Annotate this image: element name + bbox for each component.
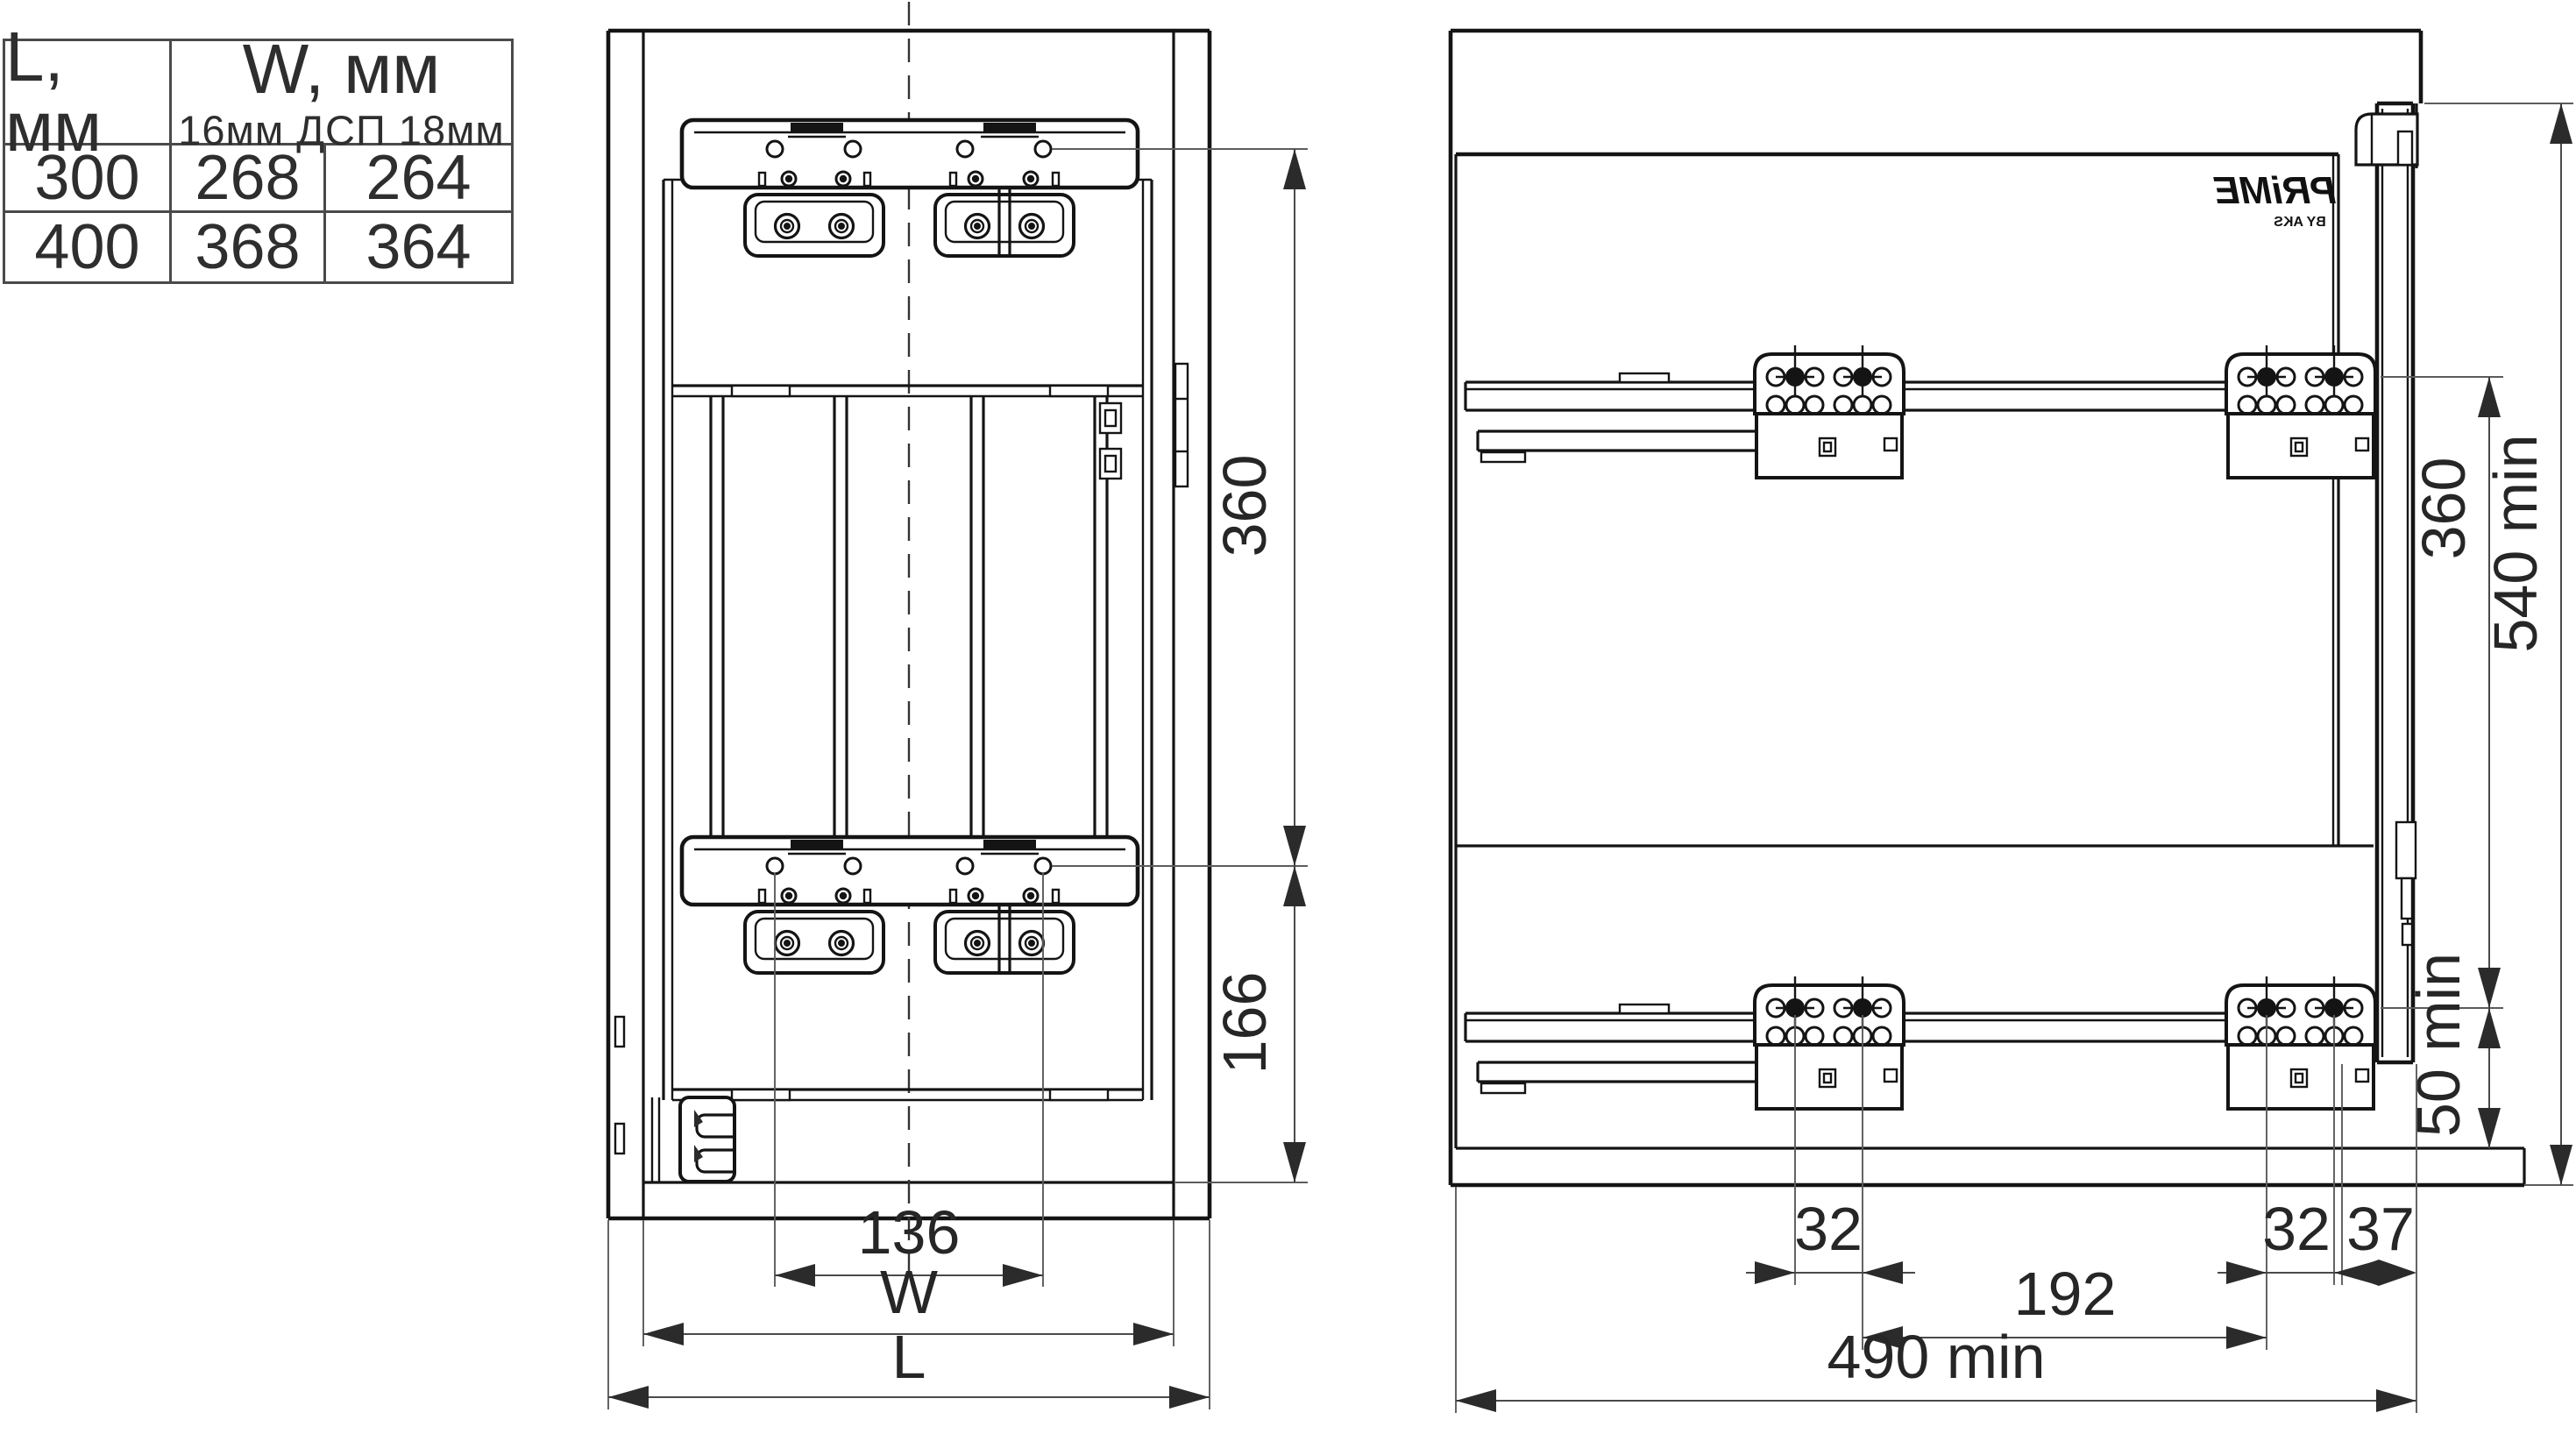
dimension-label-front-166: 166: [1210, 972, 1279, 1075]
spec-table-row: 364: [326, 213, 511, 281]
front-view-lower-rail: [682, 837, 1138, 973]
side-view-front-panel: [2356, 103, 2417, 1062]
spec-table-row: 268: [172, 146, 326, 213]
front-view: 360 166 136 W L: [608, 2, 1308, 1409]
front-view-dimensions: 360 166 136 W L: [608, 149, 1308, 1409]
technical-drawing-page: 360 166 136 W L: [0, 0, 2576, 1434]
dimension-label-side-37: 37: [2346, 1195, 2415, 1263]
dimension-label-side-540: 540 min: [2481, 434, 2550, 652]
dimension-label-front-360: 360: [1210, 455, 1279, 557]
side-view-bracket-upper-right: [2226, 345, 2375, 478]
spec-table-row: 264: [326, 146, 511, 213]
prime-logo-text: PRiME: [2213, 169, 2337, 212]
spec-table-row: 300: [5, 146, 172, 213]
side-view-bracket-lower-left: [1755, 976, 1904, 1109]
prime-logo-subtext: BY AKS: [2274, 215, 2326, 230]
dimension-label-side-360: 360: [2409, 458, 2478, 560]
dimension-label-side-32-left: 32: [1794, 1195, 1863, 1263]
spec-table-header-w-title: W, мм: [243, 34, 441, 104]
dimension-label-side-490: 490 min: [1827, 1323, 2045, 1391]
side-view-bracket-upper-left: [1755, 345, 1904, 478]
dimension-label-side-32-right: 32: [2262, 1195, 2331, 1263]
dimension-label-front-136: 136: [858, 1198, 961, 1267]
dimension-label-side-192: 192: [2014, 1260, 2117, 1328]
prime-logo: PRiME BY AKS: [2213, 169, 2337, 230]
side-view-bracket-lower-right: [2226, 976, 2375, 1109]
spec-table-header-l: L, мм: [5, 41, 172, 146]
spec-table-row: 400: [5, 213, 172, 281]
spec-table: L, мм W, мм 16мм ДСП 18мм 300 268 264 40…: [3, 39, 514, 284]
front-view-frame: [664, 180, 1188, 1100]
dimension-label-side-50: 50 min: [2404, 953, 2473, 1137]
side-view: PRiME BY AKS: [1451, 31, 2573, 1413]
dimension-label-front-l: L: [892, 1323, 926, 1391]
dimension-label-front-w: W: [880, 1258, 938, 1326]
side-view-panel: [1456, 154, 2374, 846]
spec-table-row: 368: [172, 213, 326, 281]
spec-table-header-w: W, мм 16мм ДСП 18мм: [172, 41, 511, 146]
